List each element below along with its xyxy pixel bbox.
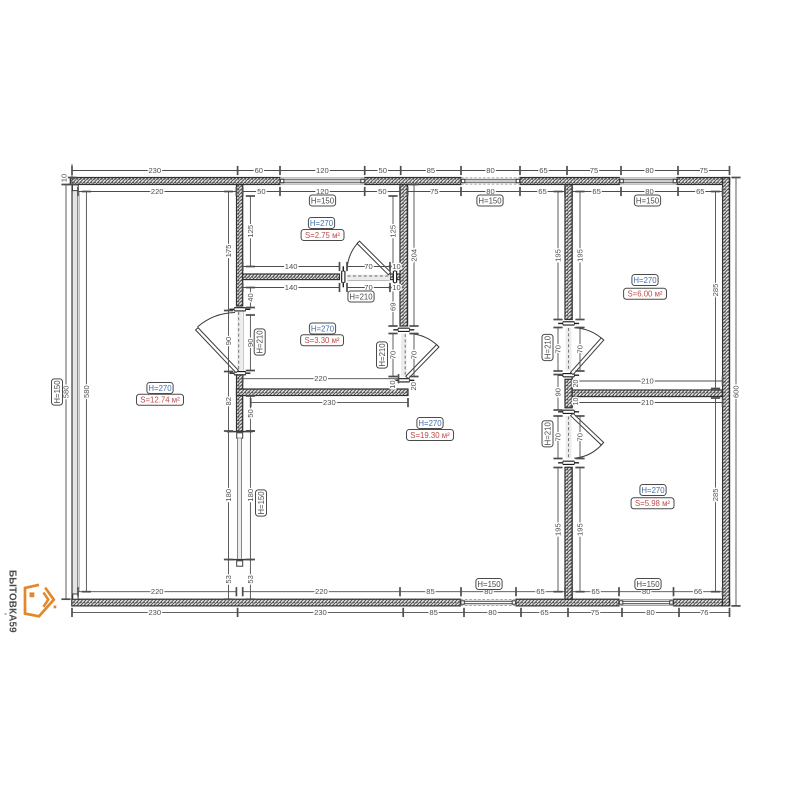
svg-text:285: 285 xyxy=(711,284,720,297)
svg-text:53: 53 xyxy=(224,575,233,583)
svg-text:10: 10 xyxy=(388,380,397,388)
svg-text:H=270: H=270 xyxy=(148,384,172,393)
svg-text:210: 210 xyxy=(641,377,654,386)
svg-text:220: 220 xyxy=(151,587,164,596)
svg-text:70: 70 xyxy=(389,351,398,359)
svg-text:53: 53 xyxy=(246,575,255,583)
svg-text:66: 66 xyxy=(694,587,702,596)
svg-text:65: 65 xyxy=(540,608,548,617)
svg-text:75: 75 xyxy=(700,166,708,175)
svg-text:600: 600 xyxy=(732,385,741,398)
svg-text:75: 75 xyxy=(590,166,598,175)
svg-text:H=150: H=150 xyxy=(311,196,335,205)
svg-text:220: 220 xyxy=(314,374,327,383)
svg-text:195: 195 xyxy=(554,523,563,536)
svg-text:90: 90 xyxy=(246,339,255,347)
svg-text:H=270: H=270 xyxy=(418,419,442,428)
svg-text:230: 230 xyxy=(323,398,336,407)
svg-text:125: 125 xyxy=(389,225,398,238)
svg-text:75: 75 xyxy=(591,608,599,617)
svg-text:50: 50 xyxy=(378,187,386,196)
svg-text:80: 80 xyxy=(645,166,653,175)
svg-text:70: 70 xyxy=(554,433,563,441)
svg-text:H=150: H=150 xyxy=(53,380,62,404)
svg-text:82: 82 xyxy=(224,397,233,405)
svg-text:70: 70 xyxy=(364,262,372,271)
svg-text:S=5.98 м²: S=5.98 м² xyxy=(635,499,670,508)
svg-text:195: 195 xyxy=(576,249,585,262)
svg-text:90: 90 xyxy=(554,388,563,396)
svg-text:20: 20 xyxy=(409,382,418,390)
svg-text:10: 10 xyxy=(60,174,69,182)
svg-text:80: 80 xyxy=(488,608,496,617)
svg-text:H=210: H=210 xyxy=(256,330,265,354)
svg-text:175: 175 xyxy=(224,245,233,258)
svg-text:230: 230 xyxy=(148,166,161,175)
svg-text:90: 90 xyxy=(224,337,233,345)
svg-text:195: 195 xyxy=(576,523,585,536)
svg-text:H=150: H=150 xyxy=(477,580,501,589)
svg-text:65: 65 xyxy=(539,166,547,175)
svg-text:85: 85 xyxy=(429,608,437,617)
svg-text:70: 70 xyxy=(576,345,585,353)
svg-text:50: 50 xyxy=(246,409,255,417)
svg-text:230: 230 xyxy=(314,608,327,617)
svg-text:S=19.30 м²: S=19.30 м² xyxy=(410,431,450,440)
svg-text:H=210: H=210 xyxy=(543,335,552,359)
svg-text:580: 580 xyxy=(82,385,91,398)
svg-text:180: 180 xyxy=(246,489,255,502)
svg-text:120: 120 xyxy=(316,166,329,175)
svg-text:220: 220 xyxy=(151,187,164,196)
svg-text:H=270: H=270 xyxy=(311,324,335,333)
svg-text:195: 195 xyxy=(554,249,563,262)
svg-text:S=6.00 м²: S=6.00 м² xyxy=(627,290,662,299)
svg-text:20: 20 xyxy=(573,380,580,388)
svg-text:H=270: H=270 xyxy=(310,219,334,228)
svg-text:69: 69 xyxy=(389,303,398,311)
svg-text:50: 50 xyxy=(378,166,386,175)
svg-text:10: 10 xyxy=(573,398,580,406)
svg-text:70: 70 xyxy=(410,351,419,359)
svg-text:80: 80 xyxy=(646,608,654,617)
svg-text:10: 10 xyxy=(392,283,400,292)
svg-text:H=150: H=150 xyxy=(636,580,660,589)
svg-text:H=150: H=150 xyxy=(257,491,266,515)
svg-text:85: 85 xyxy=(427,166,435,175)
svg-text:50: 50 xyxy=(257,187,265,196)
svg-text:60: 60 xyxy=(255,166,263,175)
svg-text:65: 65 xyxy=(538,187,546,196)
svg-text:76: 76 xyxy=(700,608,708,617)
svg-text:БЫТОВКА59: БЫТОВКА59 xyxy=(7,570,18,633)
svg-text:125: 125 xyxy=(246,225,255,238)
svg-text:S=2.75 м²: S=2.75 м² xyxy=(305,231,340,240)
svg-text:S=12.74 м²: S=12.74 м² xyxy=(140,396,180,405)
svg-text:80: 80 xyxy=(486,166,494,175)
svg-text:70: 70 xyxy=(576,433,585,441)
svg-text:140: 140 xyxy=(285,262,298,271)
svg-text:65: 65 xyxy=(696,187,704,196)
svg-text:210: 210 xyxy=(641,398,654,407)
svg-text:70: 70 xyxy=(554,345,563,353)
svg-text:180: 180 xyxy=(224,489,233,502)
svg-text:204: 204 xyxy=(410,249,419,262)
svg-text:H=210: H=210 xyxy=(543,422,552,446)
svg-text:75: 75 xyxy=(430,187,438,196)
svg-text:H=270: H=270 xyxy=(641,486,665,495)
svg-text:H=210: H=210 xyxy=(349,292,373,301)
svg-text:H=150: H=150 xyxy=(478,196,502,205)
svg-text:H=270: H=270 xyxy=(633,276,657,285)
svg-text:S=3.30 м²: S=3.30 м² xyxy=(304,336,339,345)
svg-text:H=210: H=210 xyxy=(378,343,387,367)
svg-text:65: 65 xyxy=(536,587,544,596)
svg-text:40: 40 xyxy=(246,293,255,301)
svg-text:85: 85 xyxy=(426,587,434,596)
svg-text:230: 230 xyxy=(148,608,161,617)
svg-text:10: 10 xyxy=(392,262,400,271)
svg-text:285: 285 xyxy=(711,489,720,502)
svg-text:65: 65 xyxy=(591,587,599,596)
svg-text:65: 65 xyxy=(592,187,600,196)
svg-text:H=150: H=150 xyxy=(636,196,660,205)
svg-text:220: 220 xyxy=(315,587,328,596)
svg-text:140: 140 xyxy=(285,283,298,292)
